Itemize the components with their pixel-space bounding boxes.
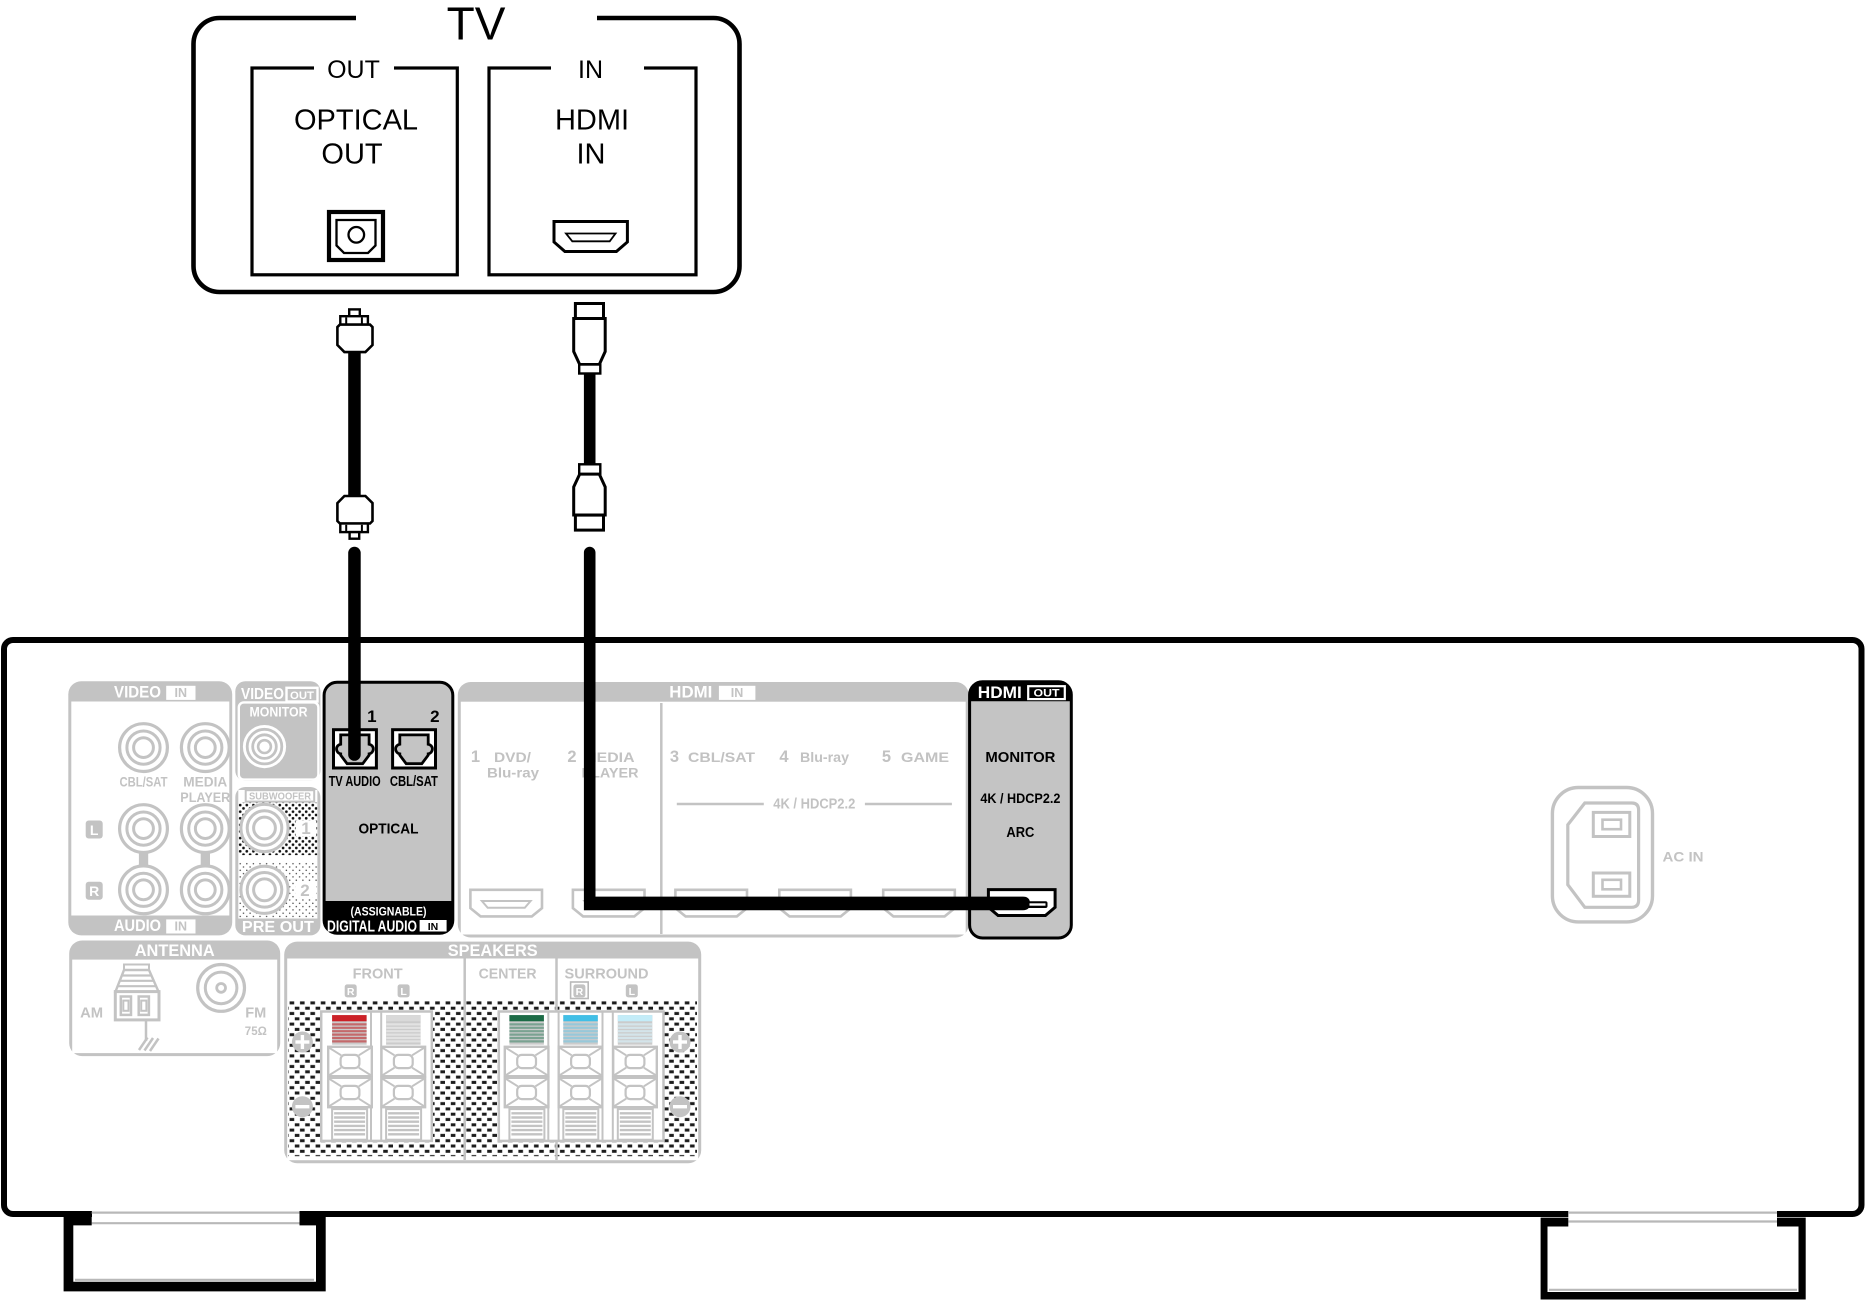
svg-text:VIDEO: VIDEO — [114, 683, 161, 701]
svg-text:TV: TV — [447, 0, 506, 50]
svg-text:IN: IN — [428, 921, 439, 933]
svg-text:MONITOR: MONITOR — [250, 704, 308, 720]
svg-text:OPTICAL: OPTICAL — [359, 821, 419, 838]
svg-text:L: L — [400, 986, 407, 998]
svg-text:4: 4 — [779, 748, 789, 766]
svg-text:IN: IN — [175, 920, 188, 934]
svg-text:GAME: GAME — [901, 750, 949, 765]
svg-text:1: 1 — [471, 748, 480, 766]
svg-text:(ASSIGNABLE): (ASSIGNABLE) — [351, 904, 427, 918]
svg-text:Blu-ray: Blu-ray — [800, 750, 850, 765]
svg-text:L: L — [90, 822, 99, 838]
svg-text:VIDEO: VIDEO — [241, 686, 284, 703]
svg-text:SPEAKERS: SPEAKERS — [448, 942, 538, 960]
svg-text:FM: FM — [245, 1005, 266, 1021]
svg-text:CBL/SAT: CBL/SAT — [688, 750, 756, 765]
svg-text:OUT: OUT — [327, 56, 380, 84]
svg-text:CENTER: CENTER — [479, 966, 537, 983]
svg-text:R: R — [576, 986, 584, 998]
svg-text:HDMI: HDMI — [555, 105, 629, 137]
svg-text:1: 1 — [301, 819, 310, 838]
svg-text:IN: IN — [731, 686, 744, 700]
svg-text:DIGITAL AUDIO: DIGITAL AUDIO — [327, 918, 417, 935]
svg-text:MEDIA: MEDIA — [183, 774, 227, 789]
svg-text:ANTENNA: ANTENNA — [135, 942, 215, 960]
svg-text:4K / HDCP2.2: 4K / HDCP2.2 — [773, 797, 855, 813]
svg-text:2: 2 — [567, 748, 576, 766]
svg-text:4K / HDCP2.2: 4K / HDCP2.2 — [980, 790, 1060, 806]
svg-text:3: 3 — [670, 748, 679, 766]
svg-text:CBL/SAT: CBL/SAT — [390, 774, 438, 790]
svg-text:OPTICAL: OPTICAL — [294, 105, 418, 137]
svg-text:IN: IN — [578, 56, 603, 84]
svg-text:HDMI: HDMI — [669, 684, 712, 702]
svg-text:Blu-ray: Blu-ray — [487, 766, 540, 781]
svg-text:L: L — [629, 986, 636, 998]
svg-text:AUDIO: AUDIO — [114, 917, 161, 935]
svg-text:PLAYER: PLAYER — [180, 790, 230, 805]
svg-text:AC IN: AC IN — [1663, 849, 1704, 864]
svg-text:FRONT: FRONT — [353, 966, 403, 983]
svg-text:PRE OUT: PRE OUT — [242, 919, 315, 936]
svg-text:OUT: OUT — [290, 690, 314, 702]
svg-text:OUT: OUT — [1034, 688, 1060, 700]
svg-text:75Ω: 75Ω — [245, 1026, 267, 1038]
svg-text:MONITOR: MONITOR — [985, 750, 1056, 766]
svg-text:IN: IN — [175, 686, 188, 700]
svg-text:DVD/: DVD/ — [494, 750, 531, 765]
svg-text:OUT: OUT — [321, 139, 383, 171]
svg-text:R: R — [347, 986, 355, 998]
svg-text:ARC: ARC — [1006, 825, 1034, 841]
svg-text:HDMI: HDMI — [978, 684, 1022, 702]
svg-text:TV AUDIO: TV AUDIO — [329, 774, 381, 790]
svg-text:2: 2 — [430, 707, 439, 726]
svg-text:AM: AM — [80, 1005, 103, 1021]
svg-text:1: 1 — [367, 707, 376, 726]
svg-text:SUBWOOFER: SUBWOOFER — [249, 791, 311, 803]
svg-text:5: 5 — [882, 748, 891, 766]
svg-text:CBL/SAT: CBL/SAT — [120, 774, 169, 789]
svg-text:IN: IN — [577, 139, 606, 171]
svg-text:2: 2 — [300, 881, 309, 900]
svg-text:SURROUND: SURROUND — [565, 966, 649, 983]
svg-text:R: R — [89, 883, 99, 899]
